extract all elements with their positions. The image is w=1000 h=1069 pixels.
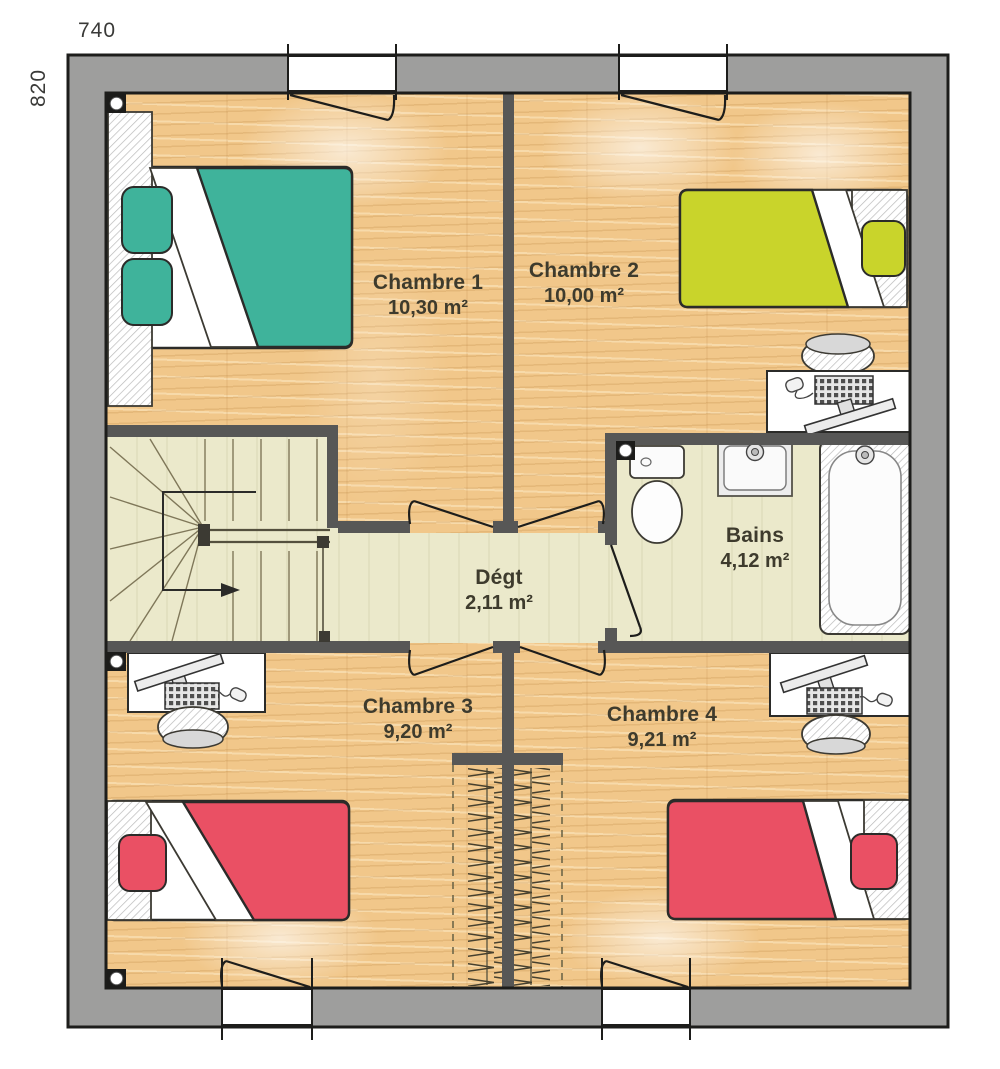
- desk: [770, 653, 910, 754]
- post-icon: [107, 94, 126, 113]
- stair-newel-post: [198, 524, 210, 546]
- desk-chair: [163, 730, 223, 748]
- hanger-rail-icon: [512, 768, 550, 986]
- pillow: [862, 221, 905, 276]
- post-icon: [616, 441, 635, 460]
- faucet-icon: [862, 452, 869, 459]
- door-swing: [611, 545, 641, 636]
- door-swing: [409, 501, 493, 527]
- pillow: [122, 187, 172, 253]
- keyboard: [807, 688, 862, 714]
- floor-plan-graphics: [0, 0, 1000, 1069]
- bathtub: [829, 451, 901, 625]
- single-bed: [668, 800, 912, 919]
- pillow: [119, 835, 166, 891]
- keyboard: [165, 683, 219, 709]
- post-icon: [107, 969, 126, 988]
- window: [619, 44, 727, 120]
- desk: [128, 653, 265, 748]
- stair-newel-post: [317, 536, 329, 548]
- hanger-rail-icon: [468, 768, 506, 986]
- stair-newel-post: [319, 631, 330, 642]
- desk-chair: [807, 738, 865, 754]
- post-icon: [107, 652, 126, 671]
- dimension-width: 740: [78, 19, 116, 43]
- desk: [767, 334, 910, 435]
- door-swing: [518, 501, 604, 527]
- bathroom-fixtures: [630, 440, 910, 634]
- floor-plan: 740 820 Chambre 1 10,30 m² Chambre 2 10,…: [0, 0, 1000, 1069]
- toilet: [632, 481, 682, 543]
- faucet-icon: [752, 449, 759, 456]
- desk-chair: [806, 334, 870, 354]
- pillow: [122, 259, 172, 325]
- single-bed: [680, 190, 907, 307]
- stair-direction-arrow-icon: [221, 583, 240, 597]
- window: [288, 44, 396, 120]
- pillow: [851, 834, 897, 889]
- toilet: [630, 446, 684, 478]
- stairs: [110, 439, 330, 642]
- door-swing: [409, 647, 493, 675]
- keyboard: [815, 376, 873, 404]
- single-bed: [107, 801, 349, 920]
- dimension-height: 820: [27, 69, 51, 107]
- door-swing: [520, 647, 605, 675]
- double-bed: [108, 112, 352, 406]
